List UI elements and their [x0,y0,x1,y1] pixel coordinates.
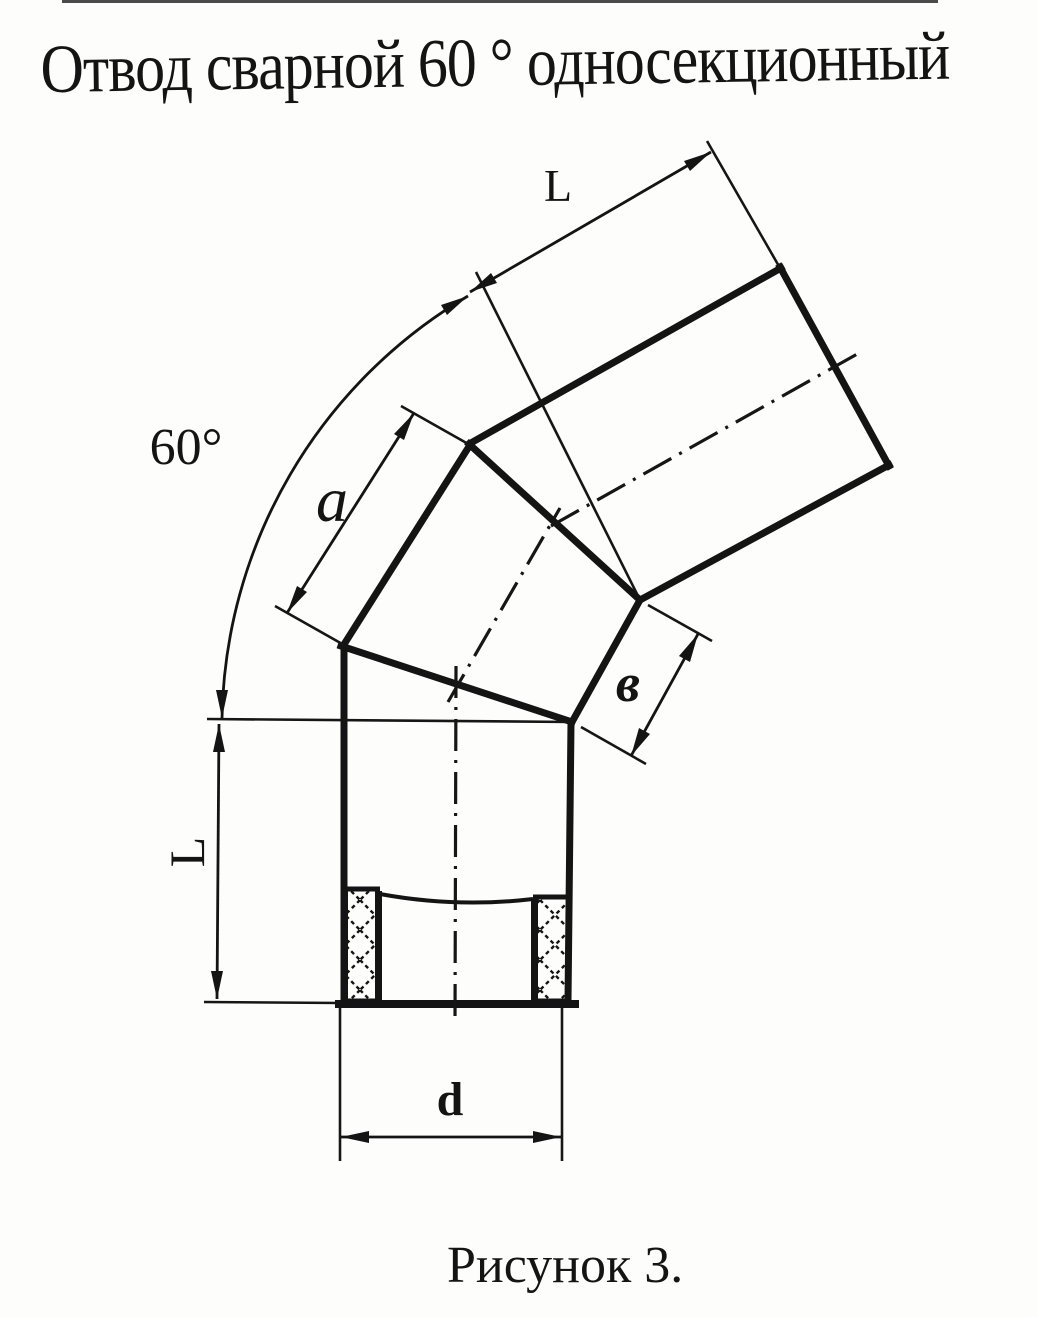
extension-stub-v-top [648,605,712,641]
arrow-d-right [533,1131,561,1143]
middle-section-outer-edge [343,445,470,646]
arrow-d-left [341,1131,369,1143]
scanned-figure-page: Отвод сварной 60 ° односекционный [0,0,1038,1317]
extension-line-bottom [204,1002,341,1003]
angle-label-60: 60° [150,422,223,474]
dim-label-d: d [437,1076,464,1124]
centerline-middle-section [448,508,560,702]
arrow-v-top [679,634,698,662]
arrow-L-top-right [684,152,711,171]
arrow-L-left-top [213,724,225,752]
arrow-L-left-bottom [211,971,223,999]
dimension-line-L-left [217,724,219,999]
centerlines [448,353,859,1024]
centerline-bottom-pipe [455,666,456,1024]
socket-wall-right-hatched [536,897,569,1001]
dim-label-a: a [316,468,348,532]
elbow-technical-drawing [0,0,1038,1317]
socket-section [346,889,569,1001]
weld-seam-upper [469,444,640,600]
arrow-arc-bottom [216,690,228,718]
arrow-a-bottom [287,586,307,613]
extension-stub-a-top [401,406,470,445]
arrow-v-bottom [631,728,650,756]
top-pipe-top-edge [469,268,781,444]
socket-wall-left-hatched [346,889,378,1001]
arrow-a-top [394,413,414,440]
dim-label-L-top: L [544,163,572,209]
extension-line-L-top-left [476,272,640,600]
dimension-line-a [287,413,414,613]
dim-label-L-left: L [162,837,212,868]
dim-label-v: в [616,656,640,710]
extension-line-L-top-right [707,141,780,268]
dimension-lines [217,152,711,1137]
figure-caption: Рисунок 3. [447,1236,683,1295]
arrow-arc-top [441,296,468,315]
dimension-arrowheads [211,152,711,1143]
pipe-outline [339,267,889,1004]
top-pipe-bottom-edge [640,465,889,600]
centerline-top-pipe [551,353,859,526]
extension-stub-a-bottom [275,606,344,645]
reference-line-horizontal [207,719,572,722]
dimension-line-L-top [470,152,711,292]
